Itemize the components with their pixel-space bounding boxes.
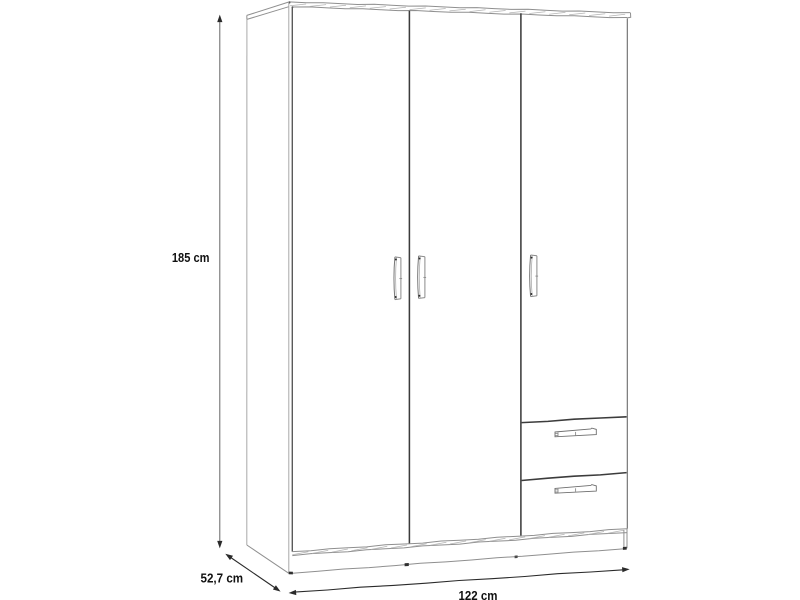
svg-text:52,7 cm: 52,7 cm [201,572,244,586]
svg-text:185 cm: 185 cm [172,251,210,265]
svg-text:122 cm: 122 cm [459,589,498,600]
